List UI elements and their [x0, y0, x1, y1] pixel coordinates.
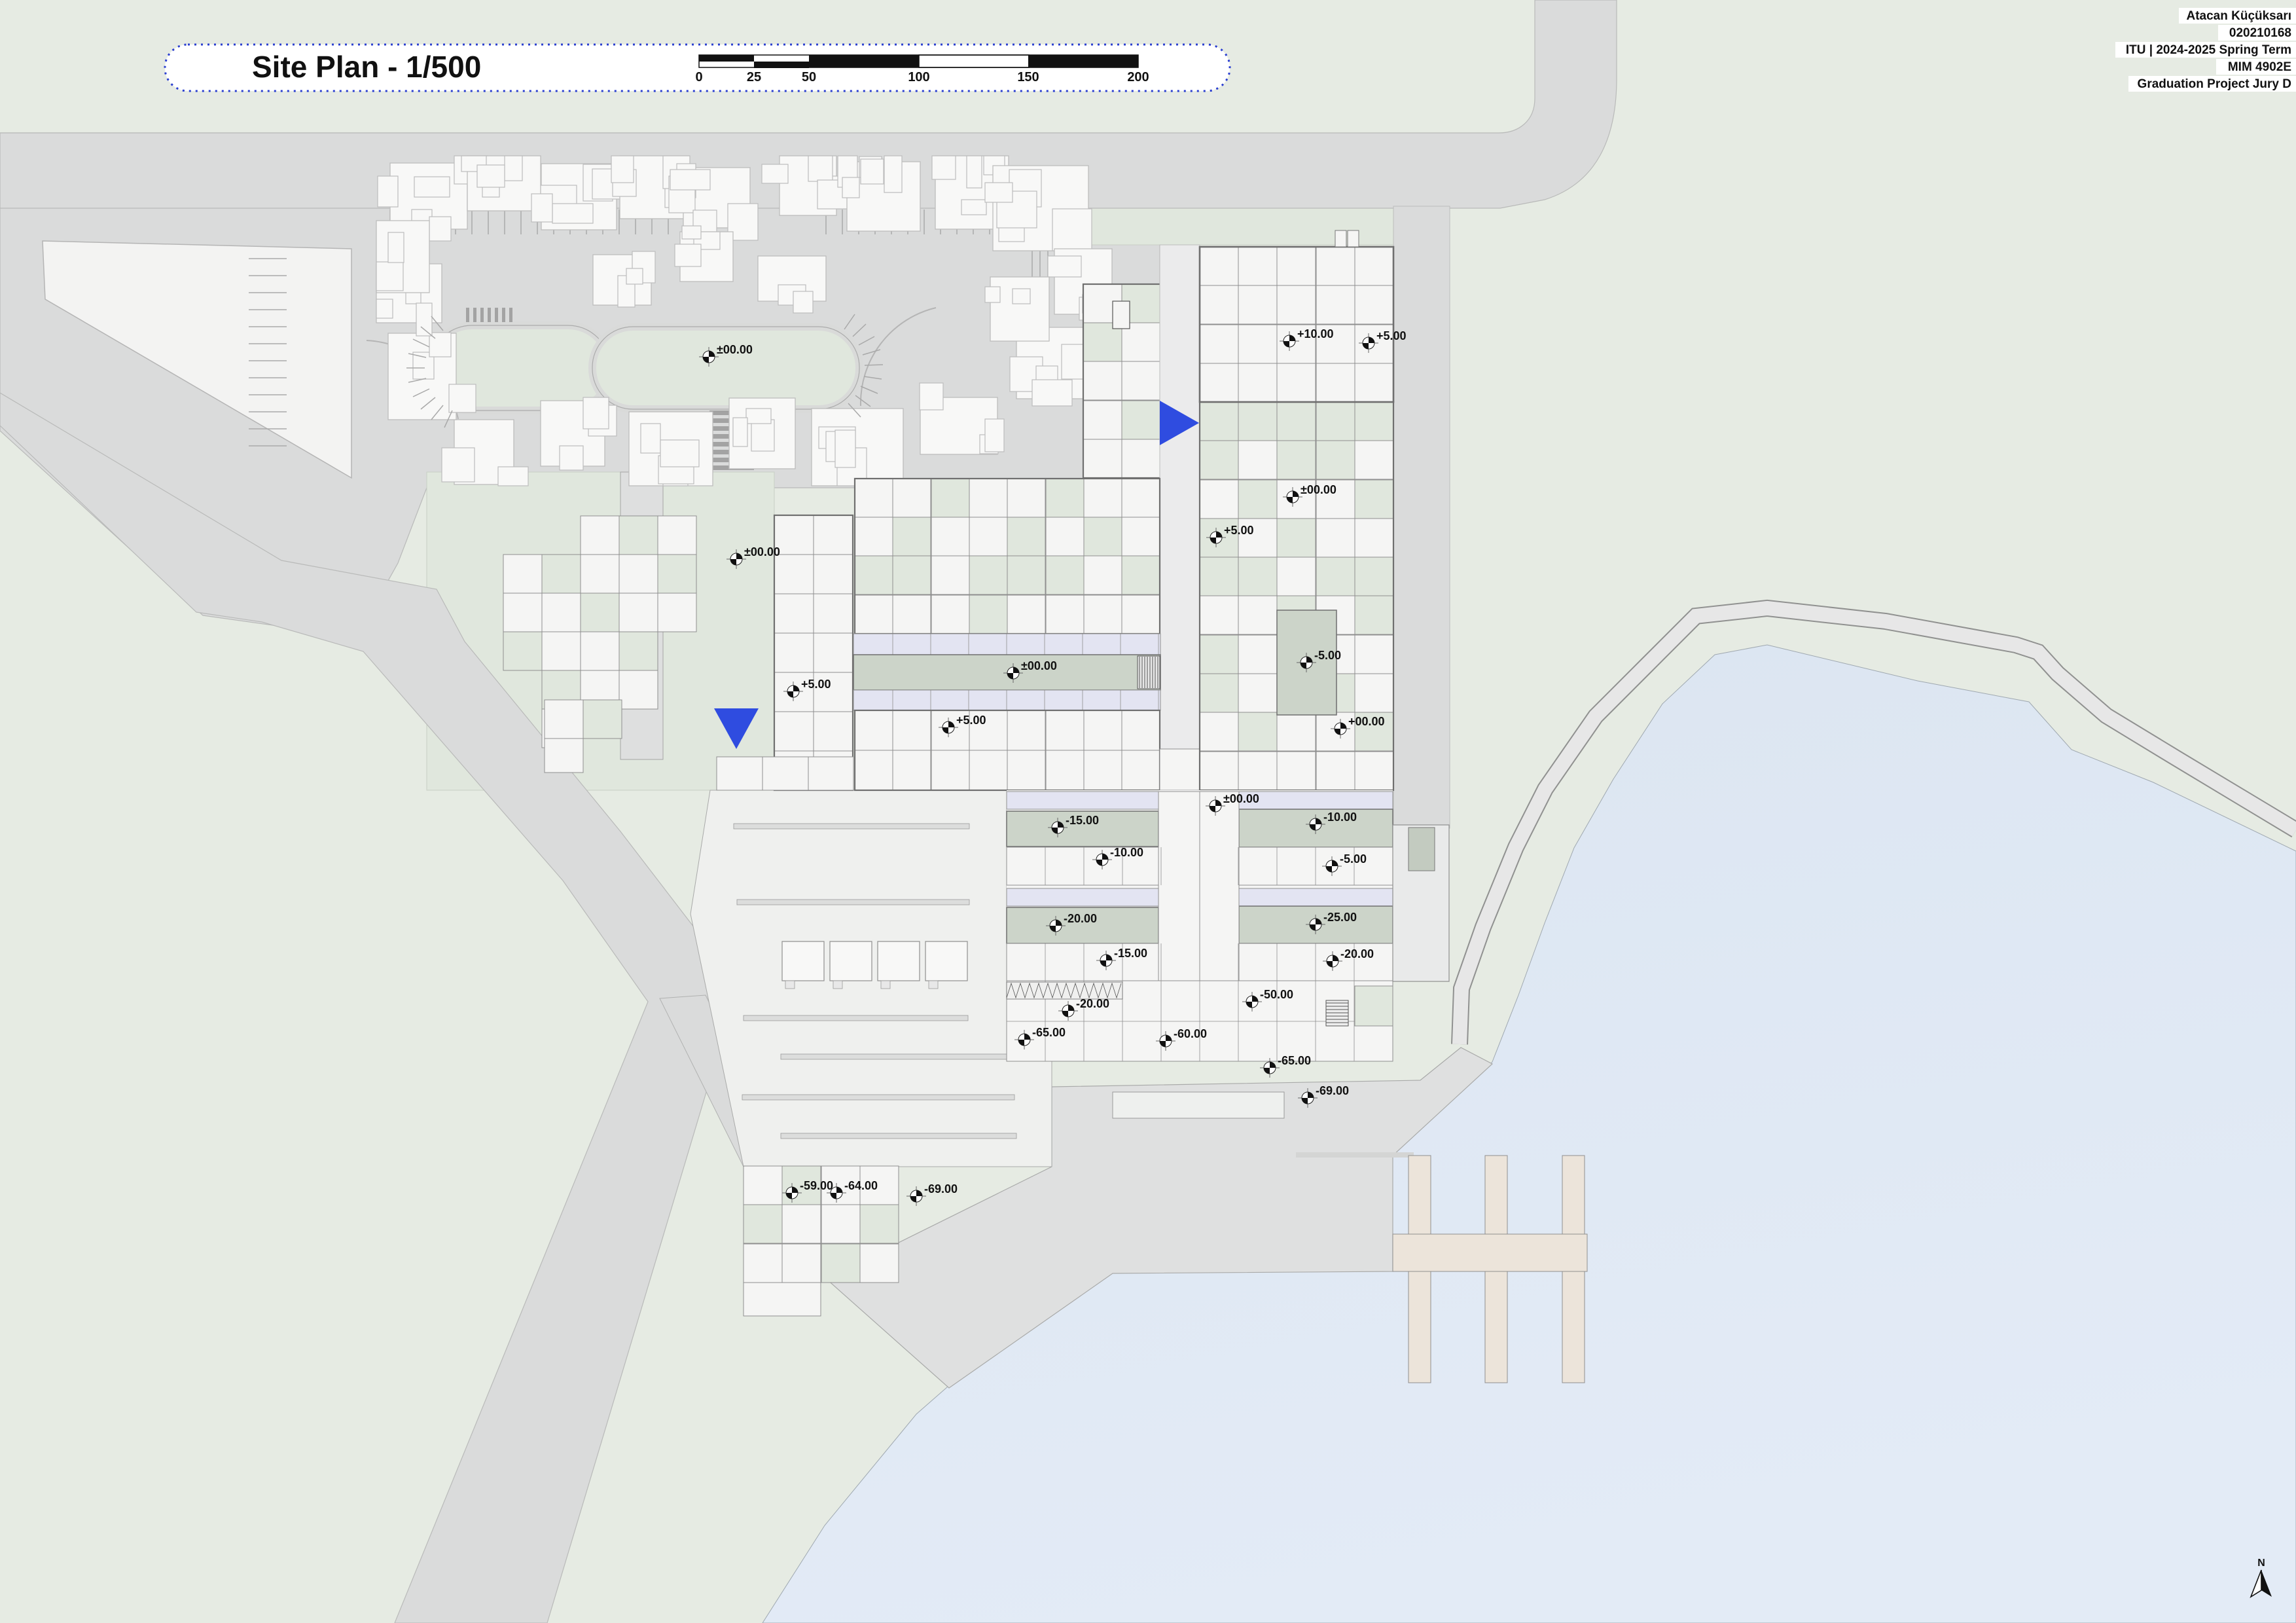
svg-text:Atacan Küçüksarı: Atacan Küçüksarı: [2186, 9, 2291, 23]
svg-text:-59.00: -59.00: [800, 1179, 833, 1192]
svg-text:ITU | 2024-2025 Spring Term: ITU | 2024-2025 Spring Term: [2126, 43, 2291, 57]
svg-text:-20.00: -20.00: [1076, 997, 1109, 1010]
svg-text:150: 150: [1017, 70, 1039, 84]
svg-text:±00.00: ±00.00: [717, 343, 753, 356]
svg-text:-20.00: -20.00: [1340, 947, 1374, 960]
svg-text:+5.00: +5.00: [1376, 329, 1407, 342]
svg-text:±00.00: ±00.00: [1223, 792, 1259, 805]
svg-text:-65.00: -65.00: [1032, 1026, 1066, 1039]
svg-text:+5.00: +5.00: [801, 678, 831, 691]
svg-text:±00.00: ±00.00: [1300, 483, 1336, 496]
svg-text:Site Plan - 1/500: Site Plan - 1/500: [252, 50, 481, 84]
svg-text:-15.00: -15.00: [1114, 947, 1147, 960]
svg-text:25: 25: [747, 70, 761, 84]
svg-text:020210168: 020210168: [2229, 26, 2291, 40]
svg-text:-15.00: -15.00: [1066, 814, 1099, 827]
svg-text:+00.00: +00.00: [1348, 715, 1385, 728]
svg-text:-69.00: -69.00: [1316, 1084, 1349, 1097]
svg-text:200: 200: [1127, 70, 1149, 84]
svg-text:-10.00: -10.00: [1323, 811, 1357, 824]
svg-text:-60.00: -60.00: [1174, 1027, 1207, 1040]
svg-text:MIM 4902E: MIM 4902E: [2228, 60, 2291, 74]
svg-text:-20.00: -20.00: [1064, 912, 1097, 925]
svg-text:-65.00: -65.00: [1278, 1054, 1311, 1067]
svg-text:100: 100: [908, 70, 929, 84]
svg-text:50: 50: [802, 70, 816, 84]
svg-text:-50.00: -50.00: [1260, 988, 1293, 1001]
svg-text:+10.00: +10.00: [1297, 327, 1334, 340]
svg-text:Graduation Project Jury D: Graduation Project Jury D: [2138, 77, 2291, 91]
svg-text:-5.00: -5.00: [1314, 649, 1341, 662]
svg-text:-64.00: -64.00: [844, 1179, 878, 1192]
svg-text:+5.00: +5.00: [956, 714, 986, 727]
svg-text:+5.00: +5.00: [1224, 524, 1254, 537]
svg-text:N: N: [2257, 1558, 2265, 1569]
svg-text:-25.00: -25.00: [1323, 911, 1357, 924]
svg-text:-69.00: -69.00: [924, 1182, 958, 1195]
svg-text:-10.00: -10.00: [1110, 846, 1143, 859]
svg-text:±00.00: ±00.00: [1021, 659, 1057, 672]
svg-text:-5.00: -5.00: [1340, 852, 1367, 866]
svg-text:±00.00: ±00.00: [744, 545, 780, 558]
svg-text:0: 0: [695, 70, 702, 84]
